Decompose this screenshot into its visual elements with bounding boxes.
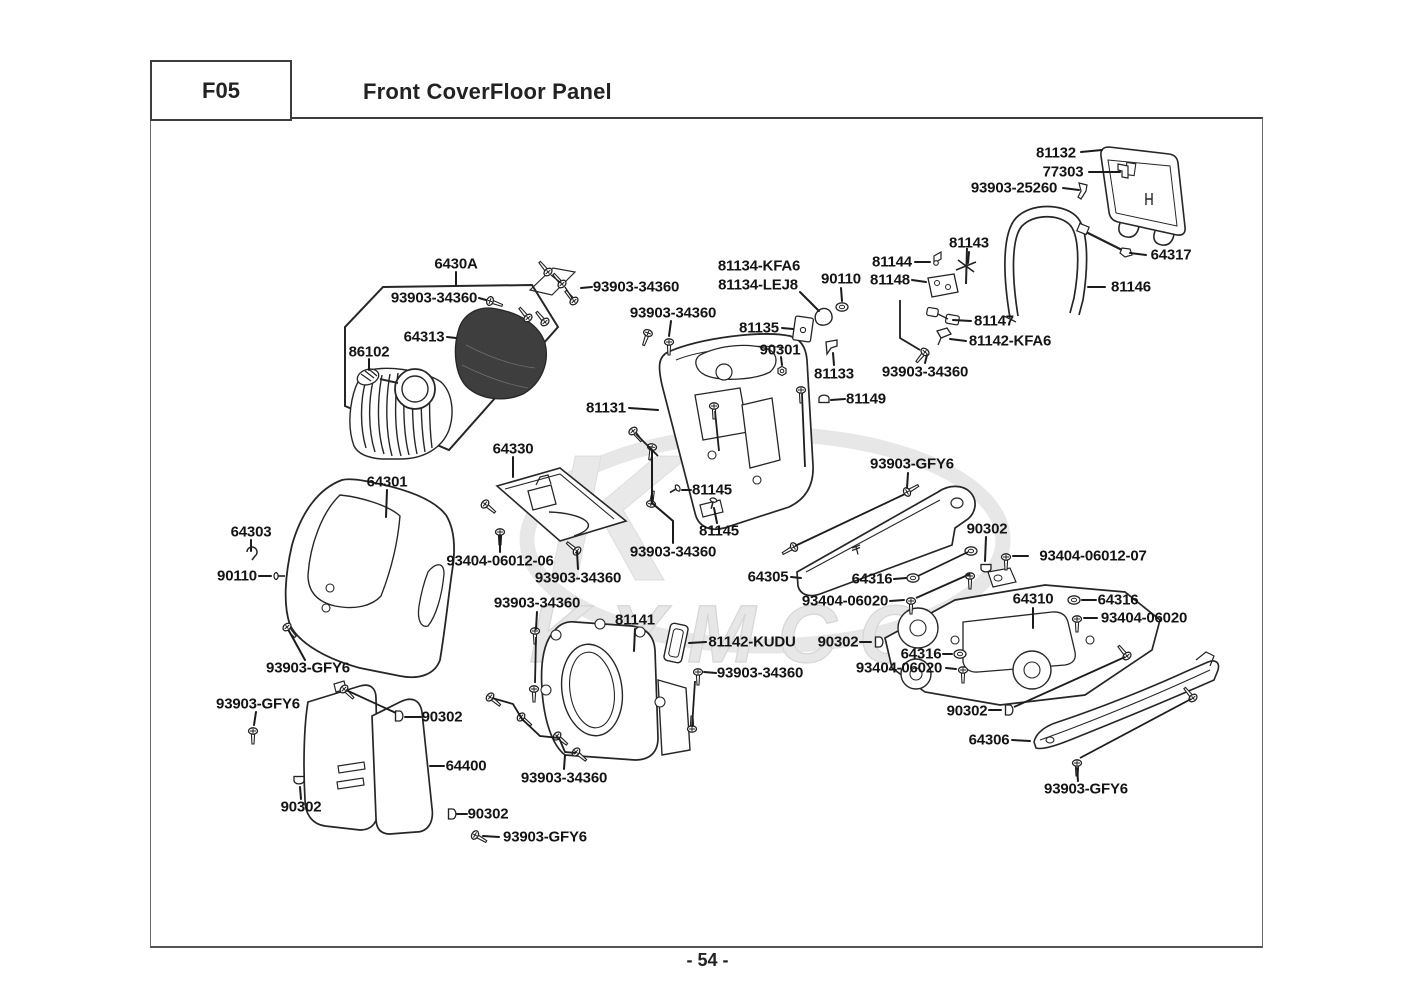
leader-line <box>782 328 793 329</box>
leader-line <box>1063 188 1079 190</box>
leader-line <box>912 280 926 282</box>
page-number: - 54 - <box>0 950 1415 971</box>
bracket-81148 <box>928 274 958 297</box>
screw-icon <box>902 482 921 498</box>
leader-line <box>300 787 301 799</box>
screw-icon <box>470 830 489 846</box>
pin-icon-90110 <box>274 573 285 580</box>
leader-line <box>946 668 956 669</box>
section-code: F05 <box>202 78 240 104</box>
screw-icon <box>780 542 799 558</box>
clip-81142-kfa6 <box>937 328 951 345</box>
leader-line <box>536 612 537 629</box>
leader-line <box>483 836 499 837</box>
leader-line <box>953 320 971 321</box>
parts-diagram: K KYMCO <box>0 0 1415 1000</box>
grommet-icon-64316 <box>1068 596 1080 604</box>
screw-icon <box>550 271 567 289</box>
screw-icon <box>530 686 539 702</box>
part-81132-front-top-cover <box>1101 147 1185 245</box>
leader-line <box>890 600 904 601</box>
leader-line <box>985 537 986 561</box>
section-code-box: F05 <box>150 60 292 121</box>
leader-line <box>689 642 706 643</box>
bracket-81143 <box>956 248 976 284</box>
leader-line <box>1081 150 1102 152</box>
nut-icon-90301 <box>778 366 786 375</box>
page-title: Front CoverFloor Panel <box>363 79 612 105</box>
leader-line <box>968 252 969 263</box>
leader-line <box>894 578 906 579</box>
grommet-icon-64316 <box>954 650 966 658</box>
leader-line <box>704 672 716 673</box>
screw-icon <box>480 498 498 515</box>
part-6430a-front-grille-assembly <box>345 268 575 459</box>
grommet-icon-90110 <box>836 303 848 311</box>
rivet-icon-90302 <box>449 809 456 819</box>
leader-line <box>1077 768 1078 781</box>
leader-line <box>577 552 578 569</box>
leader-line <box>634 629 635 651</box>
catalog-page: F05 Front CoverFloor Panel <box>0 0 1415 1000</box>
rivet-icon-81149 <box>819 395 829 402</box>
rivet-icon-90302 <box>294 777 304 784</box>
leader-line <box>841 288 842 301</box>
leader-line <box>447 337 456 338</box>
screw-icon <box>536 259 553 277</box>
screw-icon <box>249 728 258 744</box>
clip-64303 <box>247 547 257 560</box>
leader-line <box>581 287 592 288</box>
leader-line <box>791 577 801 578</box>
leader-line <box>629 408 658 410</box>
screw-icon <box>913 347 930 365</box>
rivet-icon-90302 <box>876 637 883 647</box>
leader-line <box>907 473 908 488</box>
leader-line <box>831 399 845 400</box>
leader-line <box>254 712 256 725</box>
leader-line <box>950 339 966 341</box>
pad-81135 <box>792 316 813 342</box>
clip-93903-25260 <box>1078 183 1087 199</box>
leader-line <box>800 292 819 311</box>
leader-line <box>833 353 834 365</box>
leader-line <box>1012 740 1030 741</box>
part-64400-under-cover <box>304 681 432 834</box>
leader-line <box>386 490 387 517</box>
flag-screw-81144 <box>934 252 941 265</box>
grommet-icon-64316 <box>965 547 977 555</box>
angle-81133 <box>826 340 837 354</box>
grommet-icon-64316 <box>907 574 919 582</box>
leader-line <box>669 321 671 336</box>
part-81131-front-inner-cover <box>660 334 814 529</box>
screw-icon <box>639 328 653 346</box>
rivet-icon-90302 <box>981 565 991 572</box>
part-81146-front-cover-trim <box>1004 206 1087 322</box>
part-64301-front-cover <box>286 479 454 677</box>
rivet-icon-90302 <box>1006 705 1013 715</box>
leader-line <box>781 357 782 365</box>
connector-81147 <box>926 307 959 325</box>
leader-line <box>564 755 565 769</box>
rivet-icon-90302 <box>396 711 403 721</box>
